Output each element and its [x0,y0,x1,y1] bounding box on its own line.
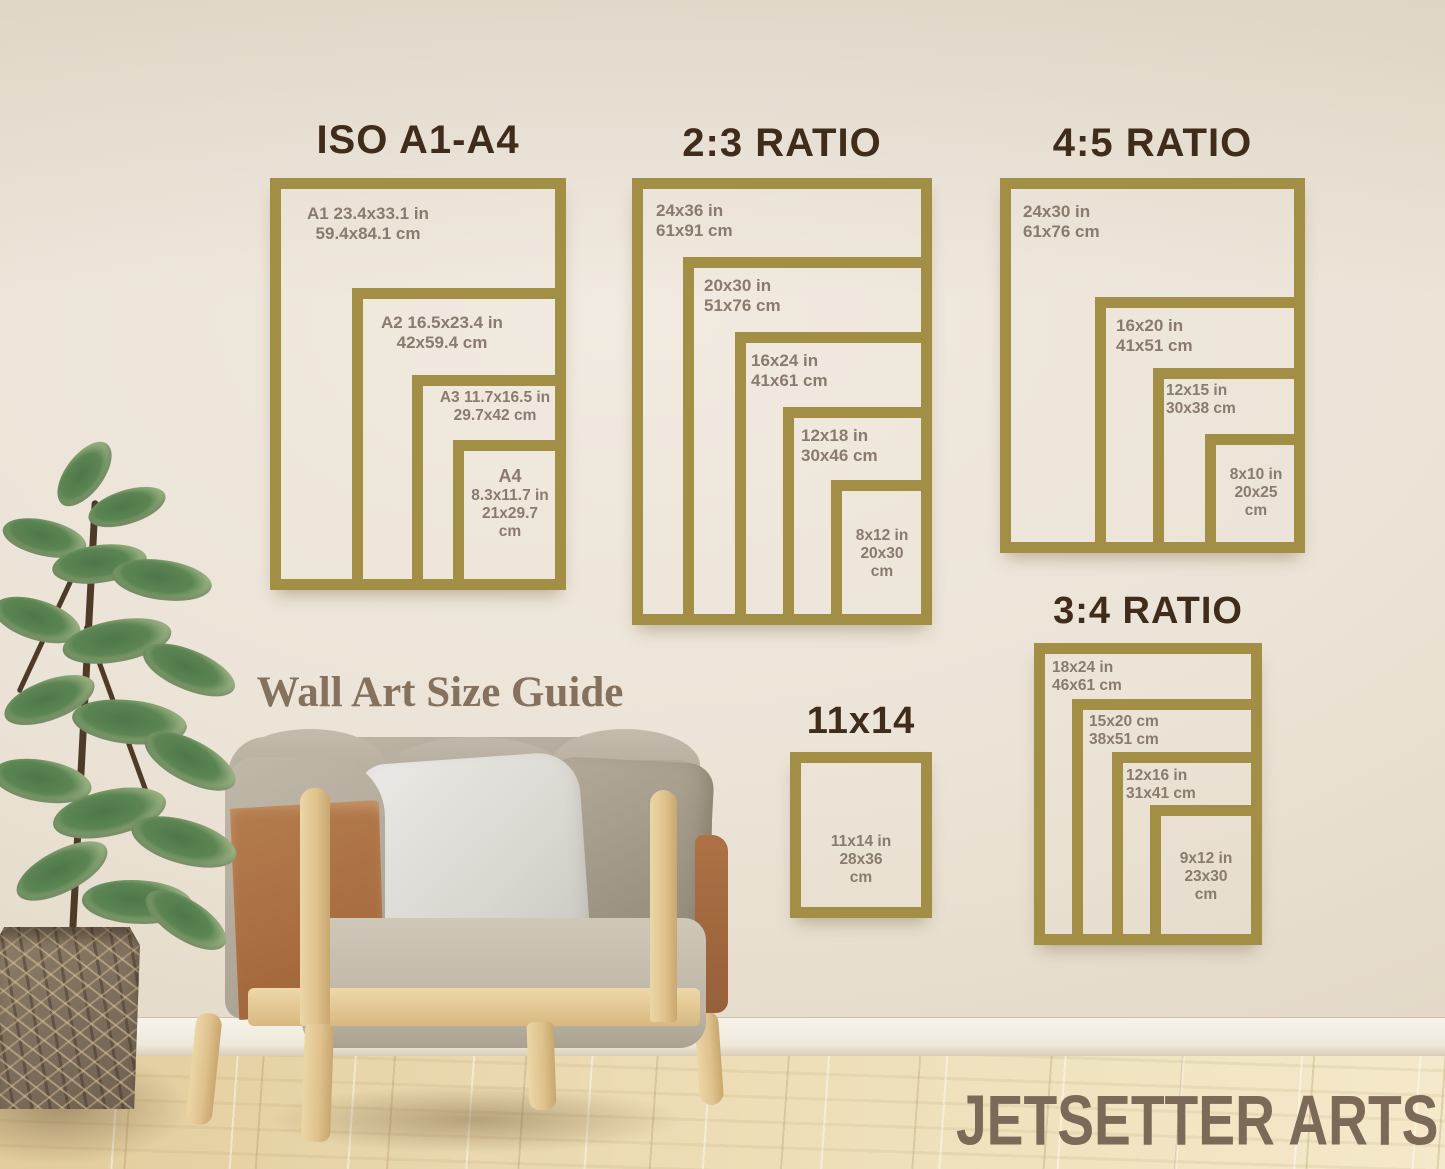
size-label-a2: A2 16.5x23.4 in 42x59.4 cm [362,313,522,352]
section-title-23: 2:3 RATIO [632,121,932,166]
size-label-16x20: 16x20 in 41x51 cm [1116,316,1193,355]
size-line: cm [806,869,916,887]
size-line: 12x18 in [801,426,878,446]
chair-left-post [300,788,330,1026]
size-line: cm [838,563,926,581]
section-title-34: 3:4 RATIO [1034,590,1262,633]
size-line: 12x16 in [1126,767,1196,785]
size-label-12x15: 12x15 in 30x38 cm [1166,382,1236,418]
poster: ISO A1-A4 A1 23.4x33.1 in 59.4x84.1 cm A… [0,0,1445,1169]
size-label-16x24: 16x24 in 41x61 cm [751,351,828,390]
size-line: 9x12 in [1163,850,1249,868]
size-line: 61x91 cm [656,221,733,241]
section-title-iso: ISO A1-A4 [270,118,566,163]
size-label-a1: A1 23.4x33.1 in 59.4x84.1 cm [288,204,448,243]
size-label-8x10: 8x10 in 20x25 cm [1212,466,1300,520]
chair-seat-cushion [302,918,706,1048]
size-line: 20x25 [1212,484,1300,502]
size-label-11x14: 11x14 in 28x36 cm [806,833,916,887]
size-line: 31x41 cm [1126,785,1196,803]
size-label-12x16: 12x16 in 31x41 cm [1126,767,1196,803]
chair-front-right-leg [526,1022,556,1111]
size-line: 18x24 in [1052,659,1122,677]
plant-basket [0,927,140,1109]
size-line: cm [1163,886,1249,904]
size-line: 20x30 [838,545,926,563]
size-label-24x36: 24x36 in 61x91 cm [656,201,733,240]
section-title-1114: 11x14 [790,700,932,743]
size-label-15x20: 15x20 cm 38x51 cm [1089,713,1159,749]
size-line: 46x61 cm [1052,677,1122,695]
size-line: 61x76 cm [1023,222,1100,242]
size-line: 11x14 in [806,833,916,851]
armchair-photo [195,735,740,1140]
size-line: 8.3x11.7 in [462,487,558,505]
section-title-45: 4:5 RATIO [1000,121,1305,166]
size-label-20x30: 20x30 in 51x76 cm [704,276,781,315]
size-line: A4 [462,466,558,487]
size-line: cm [462,523,558,541]
size-line: A1 23.4x33.1 in [288,204,448,224]
size-line: 51x76 cm [704,296,781,316]
size-line: 29.7x42 cm [420,407,570,425]
size-line: 42x59.4 cm [362,333,522,353]
size-line: 24x36 in [656,201,733,221]
size-line: A3 11.7x16.5 in [420,389,570,407]
size-label-18x24: 18x24 in 46x61 cm [1052,659,1122,695]
size-line: 59.4x84.1 cm [288,224,448,244]
size-line: 8x10 in [1212,466,1300,484]
size-line: 21x29.7 [462,505,558,523]
size-line: 16x20 in [1116,316,1193,336]
size-label-12x18: 12x18 in 30x46 cm [801,426,878,465]
size-line: 12x15 in [1166,382,1236,400]
size-label-a4: A4 8.3x11.7 in 21x29.7 cm [462,466,558,541]
size-line: 15x20 cm [1089,713,1159,731]
size-line: 8x12 in [838,527,926,545]
guide-caption: Wall Art Size Guide [240,668,640,717]
size-label-a3: A3 11.7x16.5 in 29.7x42 cm [420,389,570,425]
size-line: 20x30 in [704,276,781,296]
chair-front-left-leg [301,1024,334,1143]
chair-right-post [650,790,677,1022]
size-line: A2 16.5x23.4 in [362,313,522,333]
size-line: 38x51 cm [1089,731,1159,749]
size-label-9x12: 9x12 in 23x30 cm [1163,850,1249,904]
size-line: 41x51 cm [1116,336,1193,356]
size-label-8x12: 8x12 in 20x30 cm [838,527,926,581]
size-line: 41x61 cm [751,371,828,391]
size-line: 24x30 in [1023,202,1100,222]
size-line: 16x24 in [751,351,828,371]
size-line: 23x30 [1163,868,1249,886]
size-line: 30x46 cm [801,446,878,466]
brand-text: JETSETTER ARTS [956,1080,1439,1161]
size-label-24x30: 24x30 in 61x76 cm [1023,202,1100,241]
size-line: 28x36 [806,851,916,869]
plant-photo [0,440,242,1112]
size-line: cm [1212,502,1300,520]
size-line: 30x38 cm [1166,400,1236,418]
